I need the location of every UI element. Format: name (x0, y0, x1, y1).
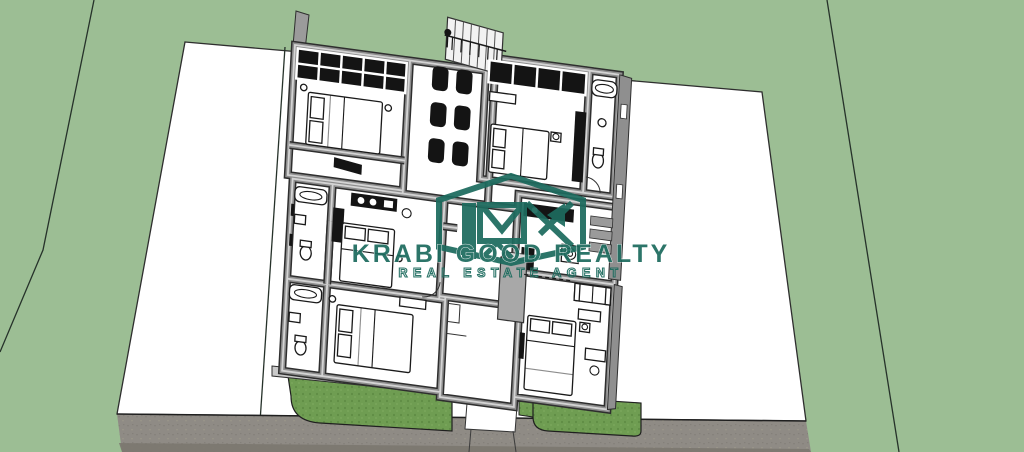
basin (294, 214, 305, 224)
toilet-tank (295, 335, 306, 342)
armchair (430, 102, 447, 128)
pillow (345, 226, 366, 241)
armchair (452, 141, 469, 167)
armchair (456, 69, 473, 95)
pillow (337, 334, 351, 358)
floorplan-render: KRABI GOOD REALTY REAL ESTATE AGENT (0, 0, 1024, 452)
pillow (530, 319, 550, 334)
window-slit (616, 184, 623, 199)
basin (598, 118, 606, 127)
lamp (385, 104, 392, 111)
road (117, 414, 811, 452)
pillow (552, 322, 572, 337)
lamp (329, 295, 336, 302)
basin (289, 312, 300, 322)
sofa-arm (574, 283, 580, 301)
window-slit (620, 104, 627, 119)
tagline-text: REAL ESTATE AGENT (399, 266, 624, 280)
pillow (493, 128, 506, 148)
armchair (454, 105, 471, 131)
pillow (339, 309, 353, 333)
desk (585, 348, 606, 362)
armchair (432, 66, 449, 92)
scene-canvas: KRABI GOOD REALTY REAL ESTATE AGENT (0, 0, 1024, 452)
sofa-arm (605, 287, 611, 305)
coffee-table (578, 309, 601, 322)
stool (300, 84, 307, 91)
toilet-tank (300, 240, 311, 247)
toilet-tank (593, 148, 603, 156)
newel-post (447, 32, 448, 47)
brand-text: KRABI GOOD REALTY (352, 240, 671, 268)
pillow (310, 97, 324, 120)
armchair (428, 138, 445, 164)
pillow (309, 121, 323, 144)
counter-sink (384, 200, 393, 208)
pillow (492, 149, 505, 169)
